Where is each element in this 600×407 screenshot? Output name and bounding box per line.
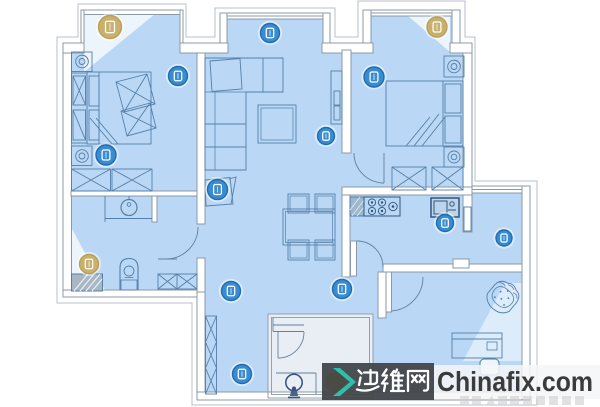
svg-text:Chinafix.com: Chinafix.com: [437, 366, 593, 397]
